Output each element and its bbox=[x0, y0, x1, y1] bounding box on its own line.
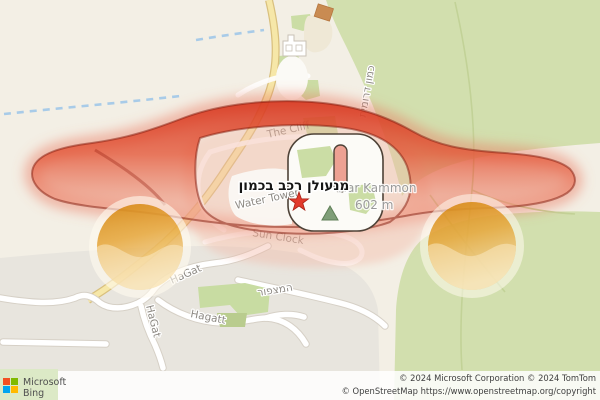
car-wheel-right bbox=[424, 198, 520, 294]
car-wheel-left bbox=[93, 200, 187, 294]
map-viewport[interactable]: HaGat HaGat Hagatt המצפור כמון דרומית Th… bbox=[0, 0, 600, 400]
copyright-line1: © 2024 Microsoft Corporation © 2024 TomT… bbox=[399, 373, 596, 383]
place-label-har-kammon: Har Kammon bbox=[338, 181, 416, 195]
pushpin-label: מנעולן רכב בכמון bbox=[239, 178, 350, 194]
brand-microsoft[interactable]: Microsoft bbox=[23, 377, 67, 388]
map-canvas[interactable]: HaGat HaGat Hagatt המצפור כמון דרומית Th… bbox=[0, 0, 600, 400]
place-label-elevation: 602 m bbox=[355, 198, 393, 212]
brand-bing[interactable]: Bing bbox=[23, 388, 44, 399]
attribution-bar: Microsoft Bing © 2024 Microsoft Corporat… bbox=[0, 369, 600, 400]
copyright-line2[interactable]: © OpenStreetMap https://www.openstreetma… bbox=[341, 386, 596, 396]
